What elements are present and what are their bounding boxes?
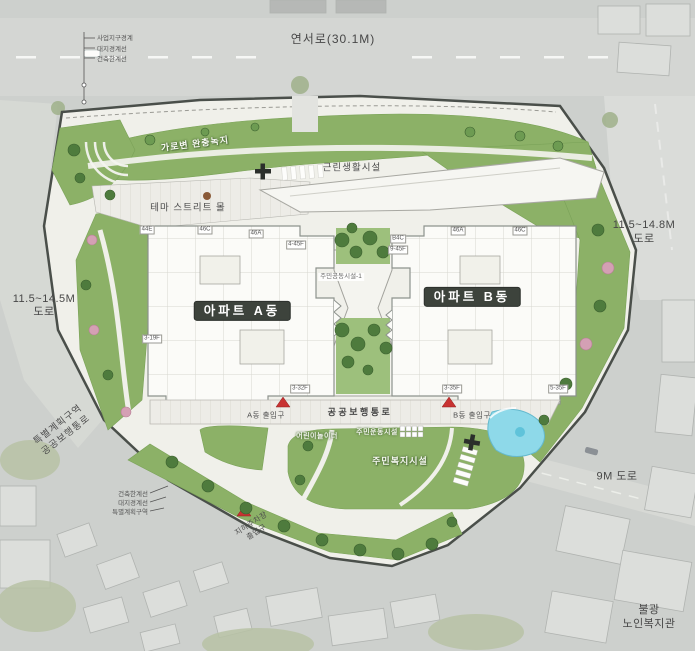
unit-tag: B4C: [390, 235, 406, 244]
label-road-9m: 9M 도로: [596, 471, 637, 484]
label-playground: 어린이놀이터: [296, 433, 338, 441]
label-entrance-b: B동 출입구: [453, 412, 491, 421]
label-road-left-line2: 도로: [13, 306, 76, 319]
legend-bottom-item-special-zone: 특별계획구역: [112, 506, 148, 516]
top-entrance-drive: [292, 96, 318, 132]
label-entrance-a: A동 출입구: [247, 412, 285, 421]
site-plan-map: [0, 0, 695, 651]
unit-tag: 46C: [197, 226, 212, 235]
legend-top-item-lot-line: 대지경계선: [97, 43, 127, 53]
label-bulgwang-welfare-center: 불광 노인복지관: [622, 603, 675, 631]
unit-tag: 44E: [140, 226, 155, 235]
label-bulgwang-line1: 불광: [622, 603, 675, 617]
label-neighborhood-facility: 근린생활시설: [323, 164, 381, 175]
unit-tag: 3-19F: [142, 335, 162, 344]
label-road-right: 11.5~14.8M 도로: [613, 218, 676, 246]
label-road-yeonseo: 연서로(30.1M): [291, 33, 375, 47]
label-road-left-line1: 11.5~14.5M: [13, 293, 76, 306]
site-plan-screenshot: 연서로(30.1M) 사업지구경계 대지경계선 건축한계선 가로변 완충녹지 테…: [0, 0, 695, 651]
unit-tag: 5-35F: [548, 385, 568, 394]
unit-tag: 3-35F: [442, 385, 462, 394]
unit-tag: 4-45F: [286, 241, 306, 250]
unit-tag: 46A: [451, 227, 466, 236]
parasol-icon: [203, 192, 211, 200]
unit-tag: 46C: [512, 227, 527, 236]
legend-top-item-boundary: 사업지구경계: [97, 32, 133, 42]
unit-tag: 3-32F: [290, 385, 310, 394]
label-road-right-line2: 도로: [613, 232, 676, 246]
label-apartment-b: 아파트 B동: [425, 288, 520, 306]
unit-tag: 9-45F: [388, 246, 408, 255]
label-bulgwang-line2: 노인복지관: [622, 617, 675, 631]
label-road-left: 11.5~14.5M 도로: [13, 293, 76, 319]
label-apartment-a: 아파트 A동: [195, 302, 290, 320]
unit-tag: 46A: [249, 230, 264, 239]
apartment-b-footprint: [392, 226, 576, 404]
label-road-right-line1: 11.5~14.8M: [613, 218, 676, 232]
label-resident-welfare: 주민복지시설: [372, 456, 428, 466]
label-exercise-area: 주민운동시설: [356, 429, 398, 437]
label-public-walkway: 공공보행통로: [328, 407, 393, 417]
label-theme-street: 테마 스트리트 몰: [150, 204, 225, 215]
label-community-facility: 주민공동시설-1: [318, 273, 364, 281]
legend-top-item-setback-line: 건축한계선: [97, 53, 127, 63]
